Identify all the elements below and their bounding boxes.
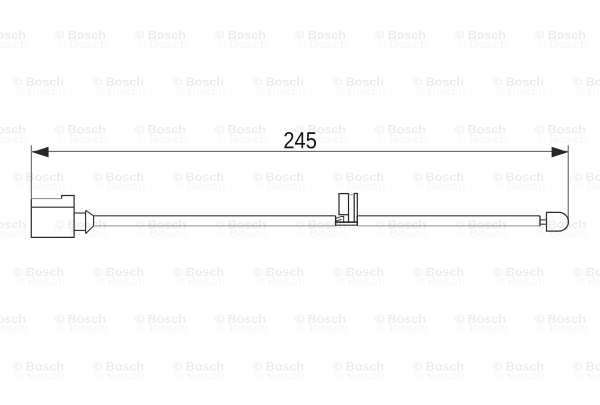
svg-text:© Bosch: © Bosch xyxy=(253,75,304,89)
svg-text:© Bosch: © Bosch xyxy=(0,28,26,42)
svg-text:© Bosch: © Bosch xyxy=(215,312,266,326)
svg-text:© Bosch: © Bosch xyxy=(375,123,426,137)
svg-text:© Bosch: © Bosch xyxy=(455,28,506,42)
svg-text:© Bosch: © Bosch xyxy=(573,360,600,374)
svg-text:© Bosch: © Bosch xyxy=(573,265,600,279)
svg-text:© Bosch: © Bosch xyxy=(455,312,506,326)
svg-text:© Bosch: © Bosch xyxy=(215,28,266,42)
svg-text:© Bosch: © Bosch xyxy=(173,360,224,374)
svg-text:© Bosch: © Bosch xyxy=(135,312,186,326)
svg-text:© Bosch: © Bosch xyxy=(93,170,144,184)
svg-text:© Bosch: © Bosch xyxy=(413,360,464,374)
svg-text:© Bosch: © Bosch xyxy=(333,170,384,184)
svg-text:© Bosch: © Bosch xyxy=(135,217,186,231)
svg-text:© Bosch: © Bosch xyxy=(455,217,506,231)
svg-text:© Bosch: © Bosch xyxy=(573,75,600,89)
svg-text:© Bosch: © Bosch xyxy=(93,75,144,89)
svg-text:© Bosch: © Bosch xyxy=(333,75,384,89)
svg-text:© Bosch: © Bosch xyxy=(295,217,346,231)
svg-text:© Bosch: © Bosch xyxy=(375,217,426,231)
svg-text:© Bosch: © Bosch xyxy=(413,170,464,184)
svg-text:© Bosch: © Bosch xyxy=(573,170,600,184)
svg-text:© Bosch: © Bosch xyxy=(13,360,64,374)
svg-text:© Bosch: © Bosch xyxy=(493,360,544,374)
svg-text:© Bosch: © Bosch xyxy=(455,123,506,137)
svg-text:© Bosch: © Bosch xyxy=(173,265,224,279)
svg-text:© Bosch: © Bosch xyxy=(13,75,64,89)
svg-text:© Bosch: © Bosch xyxy=(55,123,106,137)
svg-text:© Bosch: © Bosch xyxy=(215,217,266,231)
svg-text:© Bosch: © Bosch xyxy=(55,312,106,326)
svg-text:© Bosch: © Bosch xyxy=(253,265,304,279)
svg-text:© Bosch: © Bosch xyxy=(535,123,586,137)
svg-text:© Bosch: © Bosch xyxy=(333,360,384,374)
svg-text:© Bosch: © Bosch xyxy=(135,28,186,42)
svg-text:© Bosch: © Bosch xyxy=(413,75,464,89)
svg-text:© Bosch: © Bosch xyxy=(13,265,64,279)
svg-text:© Bosch: © Bosch xyxy=(375,28,426,42)
svg-text:© Bosch: © Bosch xyxy=(55,28,106,42)
svg-text:© Bosch: © Bosch xyxy=(295,312,346,326)
svg-text:© Bosch: © Bosch xyxy=(493,75,544,89)
svg-text:© Bosch: © Bosch xyxy=(535,28,586,42)
svg-text:© Bosch: © Bosch xyxy=(93,360,144,374)
svg-text:© Bosch: © Bosch xyxy=(55,217,106,231)
svg-text:© Bosch: © Bosch xyxy=(93,265,144,279)
svg-text:© Bosch: © Bosch xyxy=(0,123,26,137)
svg-text:© Bosch: © Bosch xyxy=(375,312,426,326)
svg-text:© Bosch: © Bosch xyxy=(173,75,224,89)
svg-text:© Bosch: © Bosch xyxy=(295,28,346,42)
svg-text:© Bosch: © Bosch xyxy=(535,312,586,326)
svg-text:© Bosch: © Bosch xyxy=(333,265,384,279)
svg-text:© Bosch: © Bosch xyxy=(13,170,64,184)
svg-text:© Bosch: © Bosch xyxy=(0,312,26,326)
svg-text:© Bosch: © Bosch xyxy=(215,123,266,137)
svg-text:© Bosch: © Bosch xyxy=(493,170,544,184)
svg-text:© Bosch: © Bosch xyxy=(0,217,26,231)
svg-text:© Bosch: © Bosch xyxy=(173,170,224,184)
svg-text:© Bosch: © Bosch xyxy=(253,170,304,184)
svg-text:© Bosch: © Bosch xyxy=(413,265,464,279)
svg-text:© Bosch: © Bosch xyxy=(253,360,304,374)
svg-text:© Bosch: © Bosch xyxy=(135,123,186,137)
svg-text:© Bosch: © Bosch xyxy=(493,265,544,279)
